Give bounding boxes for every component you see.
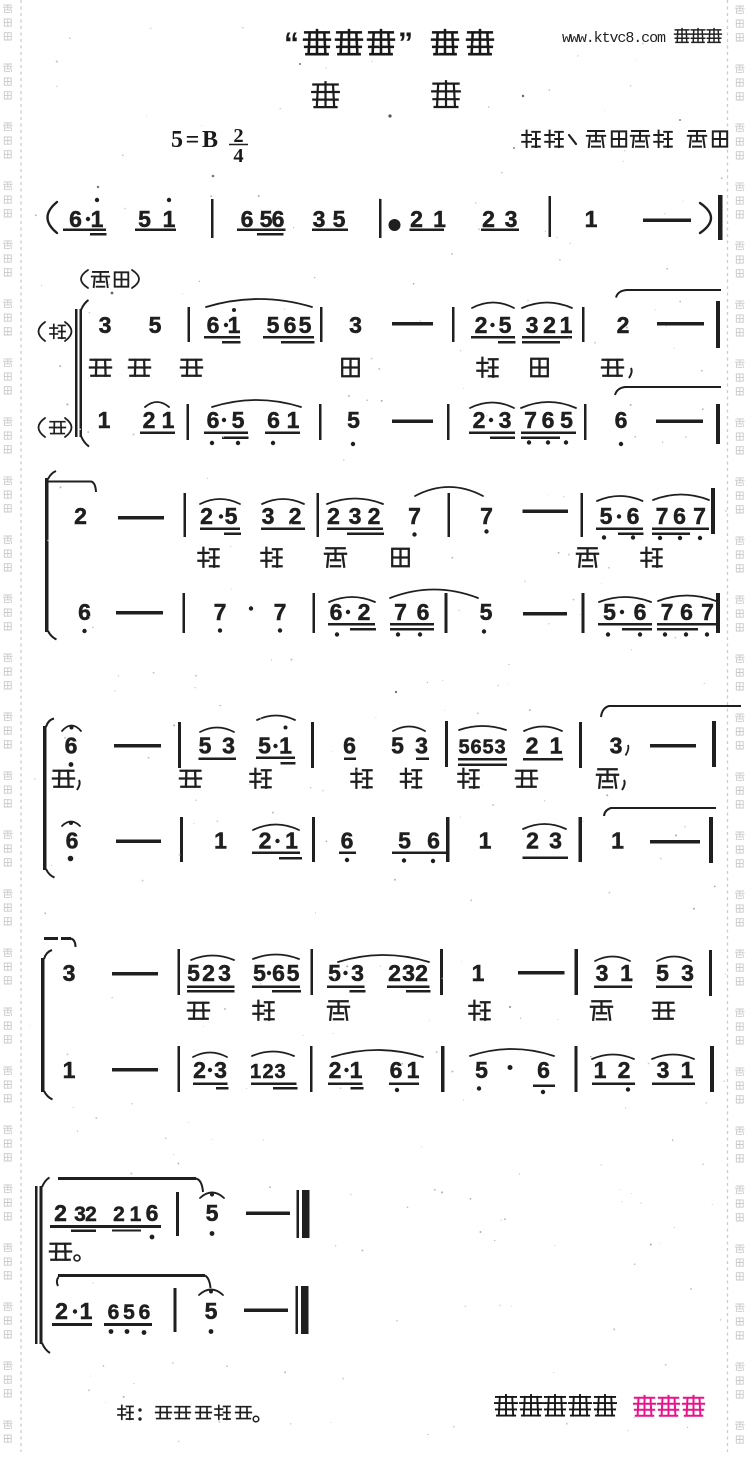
svg-text:5: 5 [232, 407, 245, 433]
svg-text:5: 5 [267, 312, 280, 338]
svg-text:6: 6 [341, 828, 354, 854]
svg-text:7: 7 [394, 599, 407, 625]
svg-text:5: 5 [398, 828, 411, 854]
svg-text:1: 1 [162, 407, 175, 433]
svg-text:5: 5 [600, 503, 613, 529]
svg-text:4: 4 [233, 145, 243, 167]
svg-text:1: 1 [433, 206, 446, 232]
svg-text:1: 1 [350, 1057, 363, 1083]
svg-text:7: 7 [214, 599, 227, 625]
svg-text:2: 2 [368, 503, 381, 529]
svg-text:3: 3 [681, 960, 694, 986]
svg-text:7: 7 [480, 503, 493, 529]
svg-text:www.ktvc8.com: www.ktvc8.com [562, 30, 666, 47]
svg-text:6: 6 [427, 828, 440, 854]
svg-text:3: 3 [218, 960, 231, 986]
svg-text:1: 1 [130, 1203, 142, 1226]
svg-text:5: 5 [328, 960, 341, 986]
svg-text:1: 1 [620, 960, 633, 986]
svg-text:6: 6 [267, 407, 280, 433]
svg-text:6: 6 [343, 733, 356, 759]
svg-text:1: 1 [91, 206, 104, 232]
svg-text:3: 3 [494, 737, 505, 759]
svg-text:2: 2 [388, 960, 401, 986]
svg-text:5: 5 [123, 1301, 135, 1324]
svg-text:2: 2 [473, 407, 486, 433]
svg-text:5: 5 [333, 206, 346, 232]
svg-text:2: 2 [617, 312, 630, 338]
svg-text:2: 2 [329, 1057, 342, 1083]
svg-text:6: 6 [470, 737, 481, 759]
svg-text:5: 5 [482, 737, 493, 759]
svg-text:7: 7 [408, 503, 421, 529]
svg-text:2: 2 [74, 503, 87, 529]
svg-text:3: 3 [313, 206, 326, 232]
svg-text:6: 6 [680, 599, 693, 625]
svg-text:1: 1 [550, 733, 563, 759]
svg-text:1: 1 [407, 1057, 420, 1083]
svg-text:1: 1 [285, 828, 298, 854]
svg-text:7: 7 [661, 599, 674, 625]
svg-text:3: 3 [505, 206, 518, 232]
svg-text:1: 1 [163, 206, 176, 232]
svg-text:2: 2 [410, 206, 423, 232]
svg-text:2: 2 [289, 503, 302, 529]
svg-text:2: 2 [85, 1203, 97, 1226]
svg-text:7: 7 [656, 503, 669, 529]
svg-text:2: 2 [54, 1200, 67, 1226]
svg-text:6: 6 [272, 960, 285, 986]
svg-text:2: 2 [113, 1203, 125, 1226]
svg-text:1: 1 [80, 1298, 93, 1324]
svg-text:3: 3 [610, 733, 623, 759]
svg-text:2: 2 [202, 960, 215, 986]
svg-text:3: 3 [499, 407, 512, 433]
svg-text:2: 2 [262, 1061, 273, 1083]
svg-text:6: 6 [65, 733, 78, 759]
svg-text:3: 3 [526, 312, 539, 338]
svg-text:2: 2 [55, 1298, 68, 1324]
svg-text:1: 1 [228, 312, 241, 338]
svg-text:2: 2 [193, 1057, 206, 1083]
svg-text:6: 6 [146, 1200, 159, 1226]
svg-text:5: 5 [458, 737, 469, 759]
svg-text:5: 5 [206, 1200, 219, 1226]
svg-text:3: 3 [63, 960, 76, 986]
svg-text:5: 5 [299, 312, 312, 338]
svg-text:1: 1 [287, 407, 300, 433]
svg-text:2: 2 [259, 828, 272, 854]
svg-text:6: 6 [634, 599, 647, 625]
svg-text:1: 1 [63, 1057, 76, 1083]
svg-text:3: 3 [274, 1061, 285, 1083]
svg-text:6: 6 [627, 503, 640, 529]
svg-text:5: 5 [287, 960, 300, 986]
svg-text:6: 6 [108, 1301, 120, 1324]
svg-text:3: 3 [262, 503, 275, 529]
svg-text:6: 6 [207, 312, 220, 338]
svg-text:5: 5 [603, 599, 616, 625]
svg-text:5: 5 [205, 1298, 218, 1324]
svg-text:2: 2 [543, 312, 556, 338]
svg-text:6: 6 [673, 503, 686, 529]
svg-text:3: 3 [596, 960, 609, 986]
svg-text:1: 1 [250, 1061, 261, 1083]
svg-text:1: 1 [479, 828, 492, 854]
svg-text:5: 5 [391, 733, 404, 759]
svg-text:1: 1 [472, 960, 485, 986]
svg-text:3: 3 [549, 828, 562, 854]
svg-text:5: 5 [656, 960, 669, 986]
svg-text:6: 6 [330, 599, 343, 625]
svg-text:1: 1 [611, 828, 624, 854]
svg-text:5: 5 [225, 503, 238, 529]
svg-text:6: 6 [78, 599, 91, 625]
svg-text:6: 6 [542, 407, 555, 433]
svg-text:2: 2 [526, 733, 539, 759]
svg-text:3: 3 [349, 503, 362, 529]
svg-text:5=B: 5=B [171, 127, 218, 153]
svg-text:2: 2 [618, 1057, 631, 1083]
svg-text:6: 6 [615, 407, 628, 433]
svg-text:5: 5 [560, 407, 573, 433]
svg-text:1: 1 [560, 312, 573, 338]
svg-text:7: 7 [701, 599, 714, 625]
svg-text:5: 5 [258, 733, 271, 759]
svg-text:2: 2 [327, 503, 340, 529]
svg-text:5: 5 [138, 206, 151, 232]
svg-text:3: 3 [349, 312, 362, 338]
svg-text:2: 2 [482, 206, 495, 232]
svg-text:6: 6 [66, 828, 79, 854]
svg-text:3: 3 [415, 733, 428, 759]
svg-text:6: 6 [69, 206, 82, 232]
svg-text:5: 5 [347, 407, 360, 433]
svg-text:6: 6 [390, 1057, 403, 1083]
svg-text:3: 3 [351, 960, 364, 986]
svg-text:6: 6 [537, 1057, 550, 1083]
svg-text:“: “ [284, 27, 299, 60]
svg-text:5: 5 [480, 599, 493, 625]
svg-text:7: 7 [274, 599, 287, 625]
svg-text:3: 3 [99, 312, 112, 338]
svg-text:1: 1 [98, 407, 111, 433]
svg-text:2: 2 [415, 960, 428, 986]
svg-text:5: 5 [475, 1057, 488, 1083]
svg-text:3: 3 [222, 733, 235, 759]
svg-text:3: 3 [402, 960, 415, 986]
svg-text:6: 6 [241, 206, 254, 232]
svg-text:1: 1 [594, 1057, 607, 1083]
svg-text:1: 1 [279, 733, 292, 759]
svg-text:6: 6 [284, 312, 297, 338]
svg-text:1: 1 [681, 1057, 694, 1083]
svg-text:2: 2 [526, 828, 539, 854]
svg-text:3: 3 [214, 1057, 227, 1083]
svg-text:7: 7 [693, 503, 706, 529]
svg-text:2: 2 [475, 312, 488, 338]
svg-text:1: 1 [585, 206, 598, 232]
svg-text:2: 2 [358, 599, 371, 625]
svg-text:7: 7 [524, 407, 537, 433]
svg-text:”: ” [398, 27, 413, 60]
svg-text:5: 5 [253, 960, 266, 986]
svg-text:1: 1 [214, 828, 227, 854]
svg-text:5: 5 [199, 733, 212, 759]
svg-text:6: 6 [272, 206, 285, 232]
svg-text:5: 5 [149, 312, 162, 338]
svg-text:6: 6 [139, 1301, 151, 1324]
svg-text:2: 2 [200, 503, 213, 529]
svg-text:5: 5 [187, 960, 200, 986]
svg-text:6: 6 [417, 599, 430, 625]
svg-text:2: 2 [143, 407, 156, 433]
svg-text:5: 5 [499, 312, 512, 338]
svg-text:6: 6 [207, 407, 220, 433]
svg-text:3: 3 [74, 1203, 86, 1226]
